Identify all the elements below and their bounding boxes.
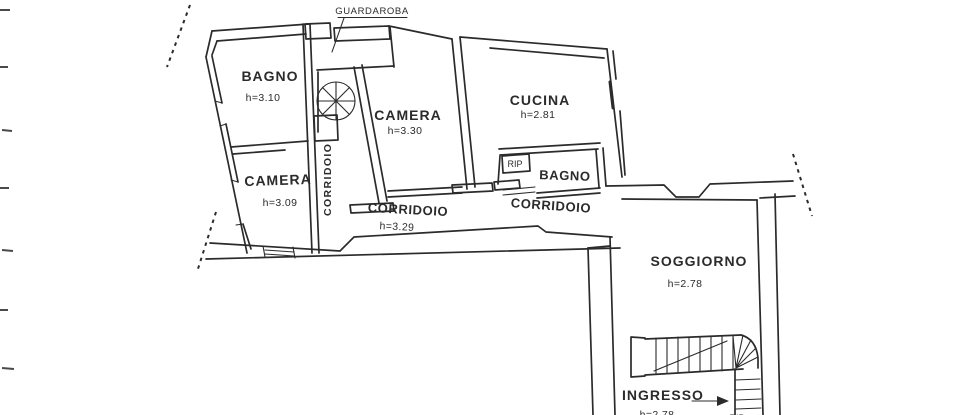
spiral-staircase [314,72,355,141]
winder-fan [733,335,758,368]
label-corridoio-stair: CORRIDOIO [322,143,334,216]
break-hatch-top-left [167,5,190,67]
label-ingresso: INGRESSO [622,387,704,403]
interior-walls-west [231,23,390,253]
guardaroba-closet [317,27,394,70]
window-kitchen [610,82,613,108]
label-guardaroba: GUARDAROBA [335,6,409,17]
height-soggiorno: h=2.78 [668,278,703,290]
guardaroba-leader [332,18,407,53]
label-rip: RIP [507,159,522,169]
label-camera-c: CAMERA [374,107,441,123]
floor-plan-drawing: GUARDAROBA BAGNO h=3.10 CAMERA h=3.09 CA… [0,0,960,415]
arrowhead [717,396,729,406]
height-ingresso: h=2.78 [640,409,675,415]
break-hatch-left [197,212,216,272]
label-cucina: CUCINA [510,92,570,108]
height-bagno-nw: h=3.10 [246,92,281,104]
outer-walls [206,24,625,253]
wall-break-hatches [167,5,812,272]
break-hatch-right [793,154,812,216]
label-corridoio-e: CORRIDOIO [510,195,591,216]
soggiorno-walls [588,194,780,415]
height-camera-w: h=3.09 [263,197,298,209]
floor-plan-sheet: GUARDAROBA BAGNO h=3.10 CAMERA h=3.09 CA… [0,0,960,415]
label-bagno-c: BAGNO [539,167,591,184]
height-corridoio-main: h=3.29 [379,220,414,234]
label-bagno-nw: BAGNO [241,68,298,84]
scan-edge-marks [0,10,14,369]
label-soggiorno: SOGGIORNO [651,253,748,269]
east-wing-walls [606,181,795,200]
height-cucina: h=2.81 [521,109,556,121]
stair-walk-line [654,341,727,371]
staircase [631,335,761,415]
label-camera-w: CAMERA [244,171,312,189]
label-corridoio-main: CORRIDOIO [367,200,448,219]
height-camera-c: h=3.30 [388,125,423,137]
